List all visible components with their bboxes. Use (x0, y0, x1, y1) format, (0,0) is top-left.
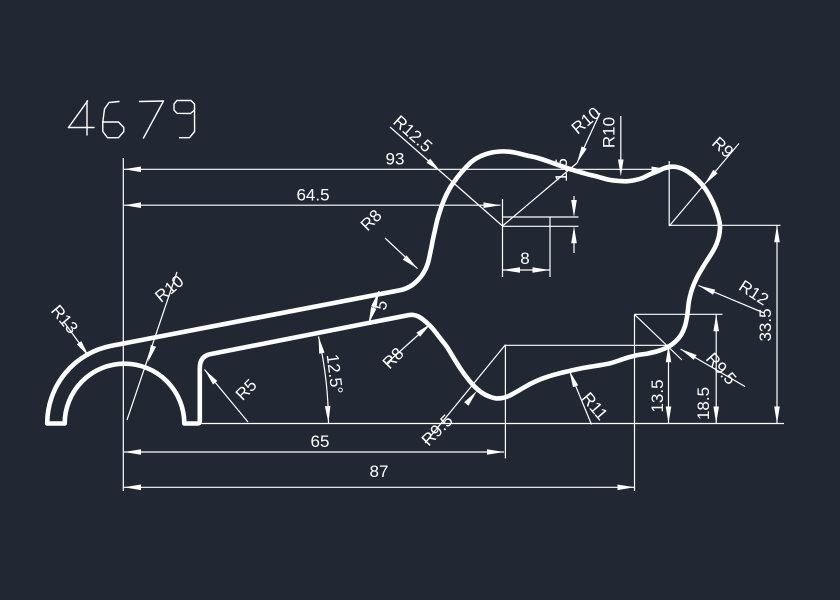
svg-text:33.5: 33.5 (756, 308, 775, 341)
svg-text:R10: R10 (600, 117, 619, 148)
svg-text:13.5: 13.5 (648, 379, 667, 412)
svg-text:64.5: 64.5 (296, 186, 329, 205)
svg-text:8: 8 (520, 249, 529, 268)
svg-text:87: 87 (370, 462, 389, 481)
svg-text:93: 93 (386, 150, 405, 169)
svg-text:65: 65 (311, 432, 330, 451)
svg-text:18.5: 18.5 (694, 387, 713, 420)
